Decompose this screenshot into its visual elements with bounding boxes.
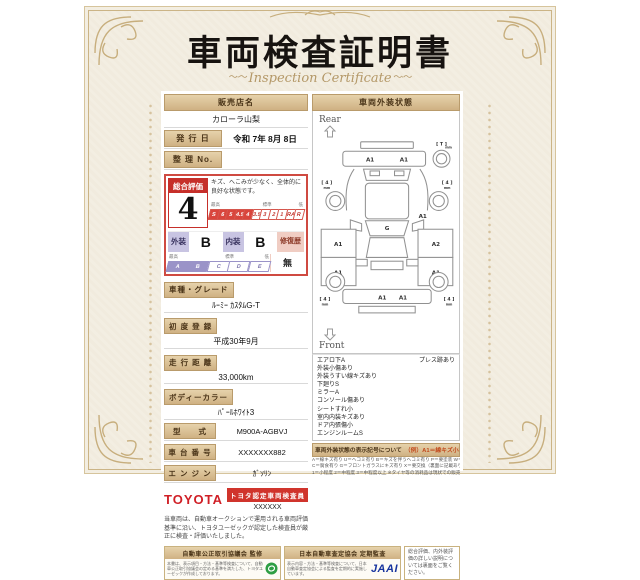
interior-grade-label: 内装 bbox=[223, 232, 244, 252]
legend-example: （例）A1＝線キズ小程度有り bbox=[405, 445, 460, 454]
jaai-box: 日本自動車査定協会 定期監査 表示内容・方法・基準等検査について、日本自動車査定… bbox=[284, 546, 401, 580]
svg-text:mm: mm bbox=[322, 302, 329, 306]
legend-header: 車両外装状態の表示記号について bbox=[315, 445, 402, 454]
jaai-text: 表示内容・方法・基準等検査について、日本自動車査定協会による監査を定期的に実施し… bbox=[287, 561, 369, 577]
svg-text:A1: A1 bbox=[399, 296, 407, 302]
rear-direction: Rear bbox=[315, 113, 457, 125]
spec-chassis-no-label: 車 台 番 号 bbox=[164, 444, 216, 460]
right-headlight bbox=[407, 259, 418, 266]
spec-chassis-no-value: XXXXXXX882 bbox=[216, 448, 308, 457]
spec-model-code: 型 式 M900A-AGBVJ bbox=[164, 423, 308, 441]
svg-text:A1: A1 bbox=[366, 158, 374, 164]
vehicle-info-column: 販売店名 カローラ山梨 発 行 日 令和 7年 8月 8日 整 理 No. bbox=[164, 94, 308, 542]
grade-rating-scale: A B C D E bbox=[168, 261, 270, 272]
subtitle-right-ornament: ～·～ bbox=[392, 73, 412, 83]
rear-garnish bbox=[361, 142, 414, 149]
toyota-logo: TOYOTA bbox=[164, 492, 223, 507]
spec-mileage-value: 33,000km bbox=[164, 371, 308, 384]
ref-no-row: 整 理 No. bbox=[164, 151, 308, 170]
condition-notes: エアロ下A プレス跡あり 外装小傷あり 外装うすい線キズあり 下廻りS ミラーA… bbox=[312, 354, 460, 441]
note-item: 外装うすい線キズあり bbox=[317, 373, 455, 381]
spec-chassis-no: 車 台 番 号 XXXXXXX882 bbox=[164, 444, 308, 462]
svg-text:A1: A1 bbox=[378, 296, 386, 302]
right-edge-ornament bbox=[486, 103, 493, 463]
dealer-name-label: 販売店名 bbox=[164, 94, 308, 111]
spec-model-grade-value: ﾙｰﾐｰ ｶｽﾀﾑG-T bbox=[164, 298, 308, 313]
overall-scale-labels: 最高 標準 低 bbox=[210, 202, 304, 209]
page-title: 車両検査証明書 bbox=[85, 25, 555, 76]
spec-body-color-label: ボディーカラー bbox=[164, 389, 233, 405]
left-headlight bbox=[356, 259, 367, 266]
exterior-condition-column: 車両外装状態 Rear A1 bbox=[312, 94, 460, 542]
spec-first-registration-value: 平成30年9月 bbox=[164, 334, 308, 349]
note-item: 下廻りS bbox=[317, 381, 455, 389]
spec-first-registration-label: 初 度 登 録 bbox=[164, 318, 217, 334]
spec-body-color: ボディーカラー ﾊﾟｰﾙﾎﾜｲﾄ3 bbox=[164, 387, 308, 421]
eco-seal-icon bbox=[265, 562, 278, 575]
front-bumper bbox=[343, 289, 431, 303]
overall-rating-scale: S 6 5 4.5 4 3.5 3 2 1 RA bbox=[210, 209, 304, 220]
exterior-grade-value: B bbox=[189, 232, 223, 252]
grade-scale-labels: 最高 標準 低 bbox=[168, 254, 270, 261]
front-direction: Front bbox=[315, 341, 457, 353]
svg-text:mm: mm bbox=[445, 145, 452, 149]
spec-engine-label: エ ン ジ ン bbox=[164, 465, 216, 481]
inspector-row: TOYOTA トヨタ認定車両検査員 XXXXXX bbox=[164, 488, 308, 511]
inspector-badge: トヨタ認定車両検査員 bbox=[227, 488, 308, 502]
top-center-ornament bbox=[260, 9, 380, 23]
svg-text:A1: A1 bbox=[400, 158, 408, 164]
content-panel: 販売店名 カローラ山梨 発 行 日 令和 7年 8月 8日 整 理 No. bbox=[161, 91, 463, 471]
windshield-mark: G bbox=[385, 226, 390, 232]
left-quarter-panel bbox=[346, 169, 354, 210]
note-item: エアロ下A bbox=[317, 357, 345, 365]
rear-arrow-icon bbox=[323, 125, 337, 139]
fair-trade-box: 自動車公正取引協議会 監修 本書は、表示項目・方法・基準等検査について、自動車公… bbox=[164, 546, 281, 580]
issue-date-label: 発 行 日 bbox=[164, 130, 222, 147]
certificate-frame: 車両検査証明書 ～·～ Inspection Certificate ～·～ 販… bbox=[84, 6, 556, 474]
right-quarter-panel bbox=[420, 169, 428, 210]
dealer-name-value: カローラ山梨 bbox=[164, 111, 308, 128]
issue-date-row: 発 行 日 令和 7年 8月 8日 bbox=[164, 130, 308, 149]
backside-note: 総合評価、内外装評価の詳しい説明については裏面をご覧ください。 bbox=[404, 546, 460, 580]
fair-trade-text: 本書は、表示項目・方法・基準等検査について、自動車公正取引協議会の定める基準を満… bbox=[167, 561, 263, 577]
ref-no-label: 整 理 No. bbox=[164, 151, 222, 168]
note-item: ドア内張傷小 bbox=[317, 422, 455, 430]
note-item: 外装小傷あり bbox=[317, 365, 455, 373]
exterior-interior-row: 外装 B 内装 B 修復歴 bbox=[168, 231, 304, 252]
spec-mileage: 走 行 距 離 33,000km bbox=[164, 352, 308, 384]
hood-panel bbox=[366, 238, 407, 258]
symbol-legend: 車両外装状態の表示記号について （例）A1＝線キズ小程度有り A＝線キズ有り U… bbox=[312, 443, 460, 476]
rear-bumper bbox=[343, 151, 426, 166]
roof-panel bbox=[365, 183, 408, 219]
exterior-grade-label: 外装 bbox=[168, 232, 189, 252]
spec-model-grade-label: 車種・グレード bbox=[164, 282, 234, 298]
exterior-condition-header: 車両外装状態 bbox=[312, 94, 460, 111]
interior-grade-value: B bbox=[244, 232, 278, 252]
front-label: Front bbox=[319, 341, 344, 351]
spec-model-code-value: M900A-AGBVJ bbox=[216, 427, 308, 436]
note-item: シートすれ小 bbox=[317, 406, 455, 414]
note-item: エンジンルームS bbox=[317, 430, 455, 438]
overall-score-value: 4 bbox=[169, 193, 207, 227]
overall-score-box: 総合評価 4 bbox=[168, 178, 208, 228]
page-subtitle: ～·～ Inspection Certificate ～·～ bbox=[85, 71, 555, 86]
note-item: ミラーA bbox=[317, 389, 455, 397]
front-arrow-icon bbox=[323, 327, 337, 341]
repair-history-value: 無 bbox=[270, 254, 304, 272]
svg-text:mm: mm bbox=[324, 186, 331, 190]
jaai-logo: JAAI bbox=[371, 563, 398, 575]
right-quarter-mark: A1 bbox=[419, 214, 427, 220]
spec-engine: エ ン ジ ン ｶﾞｿﾘﾝ bbox=[164, 465, 308, 483]
repair-history-label: 修復歴 bbox=[277, 232, 304, 252]
spec-model-code-label: 型 式 bbox=[164, 423, 216, 439]
rear-label: Rear bbox=[319, 115, 341, 125]
inspector-id: XXXXXX bbox=[227, 502, 308, 511]
front-garnish bbox=[359, 306, 415, 313]
note-item: コンソール傷あり bbox=[317, 397, 455, 405]
svg-text:A1: A1 bbox=[334, 242, 342, 248]
front-grille bbox=[371, 261, 403, 269]
car-diagram-area: Rear A1 A1 [ T ] bbox=[312, 111, 460, 354]
spec-model-grade: 車種・グレード ﾙｰﾐｰ ｶｽﾀﾑG-T bbox=[164, 279, 308, 313]
spec-body-color-value: ﾊﾟｰﾙﾎﾜｲﾄ3 bbox=[164, 405, 308, 420]
svg-text:mm: mm bbox=[446, 302, 453, 306]
fair-trade-title: 自動車公正取引協議会 監修 bbox=[165, 547, 280, 559]
legend-line: C＝腐食有り G＝フロントガラスにキズ有り X＝要交換（裏面に記載あり） XX＝… bbox=[312, 463, 460, 469]
svg-text:A2: A2 bbox=[432, 242, 440, 248]
car-exterior-diagram: A1 A1 [ T ] mm [ 4 ] bbox=[315, 139, 459, 327]
spec-engine-value: ｶﾞｿﾘﾝ bbox=[216, 468, 308, 479]
spec-mileage-label: 走 行 距 離 bbox=[164, 355, 217, 371]
screenshot-root: 車両検査証明書 ～·～ Inspection Certificate ～·～ 販… bbox=[0, 0, 640, 480]
note-item: 室内内装キズあり bbox=[317, 414, 455, 422]
svg-text:mm: mm bbox=[444, 186, 451, 190]
evaluation-box: 総合評価 4 キズ、へこみが少なく、全体的に良好な状態です。 最高 標準 低 bbox=[164, 174, 308, 276]
disclaimer-text: 当車両は、自動車オークションで運用される車両評価基準に沿い、トヨタユーゼックが認… bbox=[164, 516, 308, 542]
legend-line: 1＝小程度 2＝中程度 3＝中程度以上 ※タイヤ等の消耗品は現状での販売となりま… bbox=[312, 470, 460, 476]
jaai-title: 日本自動車査定協会 定期監査 bbox=[285, 547, 400, 559]
overall-score-label: 総合評価 bbox=[169, 179, 207, 193]
certification-footer: 自動車公正取引協議会 監修 本書は、表示項目・方法・基準等検査について、自動車公… bbox=[164, 546, 460, 580]
note-item-right: プレス跡あり bbox=[419, 357, 455, 365]
spec-first-registration: 初 度 登 録 平成30年9月 bbox=[164, 316, 308, 350]
left-edge-ornament bbox=[147, 103, 154, 463]
subtitle-left-ornament: ～·～ bbox=[229, 73, 249, 83]
issue-date-value: 令和 7年 8月 8日 bbox=[222, 133, 308, 145]
evaluation-comment: キズ、へこみが少なく、全体的に良好な状態です。 bbox=[210, 178, 304, 202]
